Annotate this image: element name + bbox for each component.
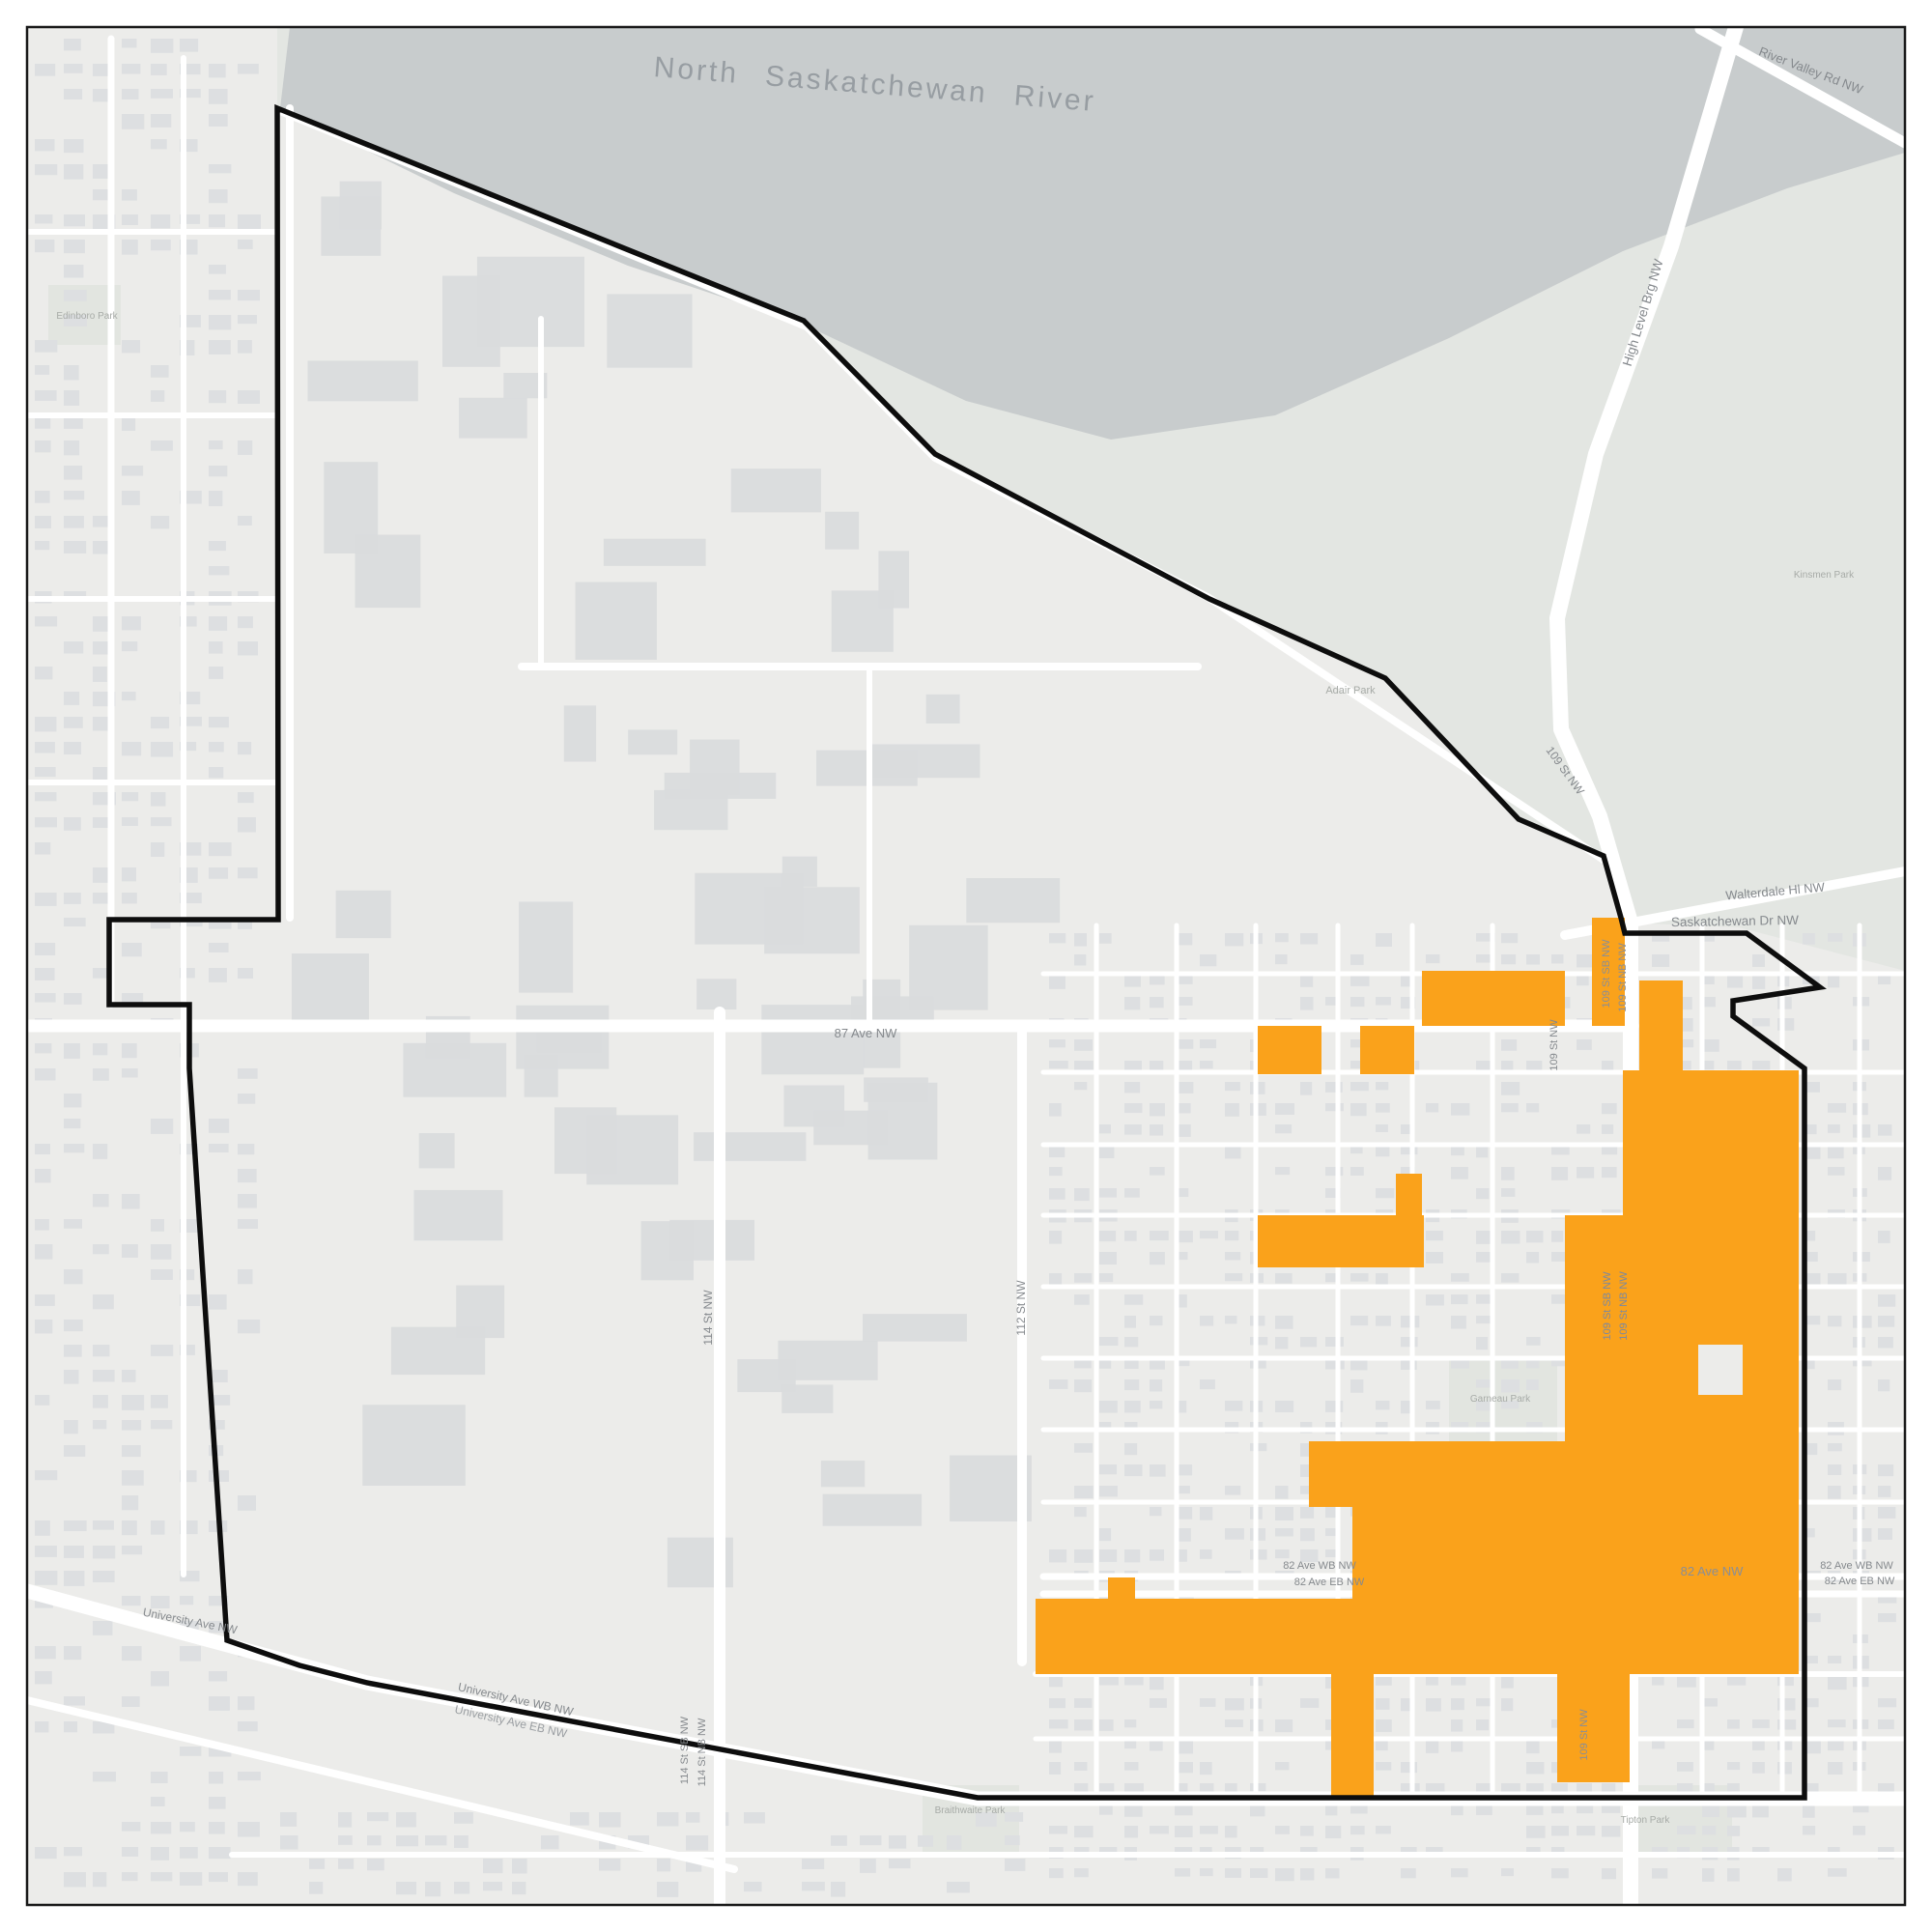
house	[1602, 1124, 1613, 1134]
house	[1501, 1167, 1515, 1180]
house	[64, 290, 87, 301]
house	[1225, 1252, 1240, 1260]
house	[1828, 1486, 1841, 1499]
house	[209, 541, 226, 551]
house	[1074, 933, 1087, 947]
house	[1099, 1804, 1113, 1815]
house	[1752, 1719, 1770, 1728]
house	[180, 1872, 202, 1886]
house	[1878, 1231, 1890, 1243]
house	[1005, 1812, 1023, 1822]
house	[1175, 1826, 1193, 1837]
house	[1124, 1401, 1141, 1412]
house	[1200, 1826, 1218, 1834]
house	[122, 1194, 140, 1209]
house	[35, 340, 57, 353]
house	[151, 792, 165, 807]
house	[1350, 997, 1364, 1007]
house	[1451, 1741, 1463, 1751]
house	[1150, 1061, 1163, 1071]
house	[151, 1395, 168, 1408]
house	[209, 290, 231, 299]
house	[122, 64, 140, 74]
house	[1476, 1804, 1492, 1815]
campus-building	[292, 953, 369, 1022]
house	[93, 1244, 109, 1254]
house	[918, 1835, 933, 1847]
map-label-st112: 112 St NW	[1014, 1280, 1028, 1336]
house	[209, 466, 227, 476]
house	[209, 1696, 230, 1711]
house	[151, 214, 170, 228]
house	[35, 240, 54, 252]
house	[1426, 1741, 1438, 1753]
house	[1828, 1103, 1846, 1113]
house	[1124, 1677, 1144, 1685]
house	[209, 390, 226, 403]
map-viewport: North Saskatchewan RiverRiver Valley Rd …	[0, 0, 1932, 1932]
house	[1225, 1103, 1239, 1117]
house	[64, 1345, 82, 1357]
house	[238, 290, 260, 300]
house	[209, 1144, 229, 1152]
house	[1376, 1316, 1391, 1326]
house	[1501, 1188, 1515, 1197]
house	[1350, 1082, 1369, 1091]
house	[64, 1546, 84, 1558]
house	[1828, 976, 1839, 987]
house	[1853, 1316, 1872, 1328]
campus-building	[821, 1461, 865, 1487]
house	[1225, 1231, 1238, 1240]
house	[35, 1395, 49, 1406]
campus-building	[654, 790, 727, 830]
house	[1702, 1826, 1716, 1834]
house	[122, 641, 137, 651]
house	[1200, 1549, 1212, 1559]
campus-building	[321, 196, 381, 255]
house	[35, 742, 55, 753]
house	[1727, 1762, 1740, 1770]
house	[1376, 933, 1392, 947]
house	[1476, 1337, 1488, 1350]
house	[1828, 1146, 1844, 1158]
house	[1049, 1868, 1064, 1878]
house	[1200, 1379, 1215, 1389]
house	[1878, 1486, 1890, 1497]
house	[1602, 1783, 1615, 1792]
house	[1526, 1783, 1544, 1793]
house	[1677, 1719, 1694, 1728]
campus-building	[413, 1190, 502, 1240]
campus-building	[783, 1086, 844, 1127]
house	[1074, 1826, 1094, 1837]
house	[1049, 1762, 1061, 1775]
house	[64, 1847, 82, 1856]
map-label-tipton-park: Tipton Park	[1621, 1815, 1671, 1826]
highlight-zone-block	[1258, 1026, 1321, 1074]
house	[1099, 1677, 1119, 1686]
house	[1275, 1316, 1293, 1329]
house	[35, 1043, 51, 1053]
map-label-ave87: 87 Ave NW	[835, 1026, 898, 1040]
house	[1275, 1273, 1293, 1284]
house	[1803, 933, 1815, 945]
house	[396, 1882, 416, 1894]
house	[1275, 954, 1288, 964]
house	[1150, 1252, 1165, 1264]
map-label-st114: 114 St NW	[701, 1290, 715, 1346]
campus-building	[696, 979, 736, 1009]
house	[122, 1068, 138, 1077]
house	[64, 1094, 81, 1107]
house	[1501, 933, 1518, 943]
house	[35, 440, 51, 452]
house	[1150, 1103, 1165, 1116]
house	[93, 1144, 107, 1159]
highlight-zone-block	[1036, 1599, 1799, 1674]
house	[238, 1169, 257, 1182]
house	[122, 1596, 141, 1605]
house	[1777, 1868, 1792, 1881]
map-label-st114-nb: 114 St NB NW	[696, 1718, 708, 1786]
house	[1099, 1231, 1116, 1241]
house	[1526, 1337, 1541, 1346]
house	[64, 1320, 83, 1331]
house	[1501, 1082, 1520, 1095]
house	[1376, 1124, 1388, 1132]
house	[1250, 1443, 1266, 1451]
house	[454, 1812, 473, 1824]
house	[64, 541, 86, 554]
house	[122, 1646, 142, 1661]
campus-building	[863, 1314, 967, 1341]
house	[1501, 1231, 1520, 1244]
house	[122, 189, 137, 201]
house	[1727, 976, 1743, 988]
house	[1878, 1316, 1894, 1327]
house	[64, 717, 83, 728]
house	[1074, 1868, 1089, 1877]
house	[151, 139, 167, 149]
house	[1325, 1167, 1343, 1176]
highlight-zone-block	[1565, 1215, 1799, 1507]
house	[122, 1445, 141, 1457]
house	[122, 893, 137, 903]
house	[64, 1119, 80, 1128]
house	[209, 943, 229, 952]
house	[512, 1882, 526, 1894]
campus-building	[391, 1327, 485, 1375]
campus-building	[628, 729, 677, 754]
map-label-st114-sb: 114 St SB NW	[679, 1716, 691, 1784]
house	[1074, 1719, 1093, 1730]
house	[657, 1859, 670, 1871]
house	[1150, 1677, 1164, 1690]
campus-building	[355, 535, 421, 609]
house	[35, 1470, 57, 1480]
house	[1878, 1613, 1896, 1622]
house	[860, 1859, 876, 1873]
house	[64, 89, 82, 99]
house	[93, 1294, 114, 1309]
house	[541, 1835, 559, 1849]
house	[151, 1345, 173, 1356]
house	[209, 641, 223, 654]
highlight-zone-block	[1258, 1215, 1424, 1267]
house	[1049, 1826, 1067, 1834]
house	[1577, 1167, 1594, 1179]
house	[1300, 976, 1313, 987]
house	[1150, 1231, 1169, 1240]
house	[209, 1671, 227, 1681]
house	[35, 943, 55, 955]
house	[1878, 1294, 1895, 1307]
house	[238, 616, 253, 628]
house	[1526, 954, 1540, 965]
house	[1501, 1868, 1514, 1876]
house	[122, 466, 143, 476]
house	[64, 164, 83, 180]
house	[1828, 1656, 1841, 1663]
house	[1878, 1698, 1896, 1707]
house	[1200, 954, 1216, 966]
house	[238, 1094, 255, 1104]
campus-building	[442, 275, 500, 366]
house	[1275, 1719, 1293, 1732]
house	[1150, 1167, 1165, 1176]
house	[35, 1294, 55, 1306]
house	[1501, 1273, 1519, 1283]
house	[64, 265, 83, 277]
house	[122, 1420, 141, 1431]
campus-building	[554, 1107, 616, 1174]
house	[1828, 1379, 1841, 1390]
house	[1049, 1719, 1068, 1728]
house	[1099, 1337, 1118, 1346]
house	[1677, 1677, 1696, 1688]
house	[1652, 954, 1669, 967]
house	[280, 1812, 297, 1827]
house	[1526, 1741, 1540, 1753]
house	[209, 440, 223, 449]
house	[64, 365, 79, 380]
house	[1577, 1039, 1592, 1050]
house	[1401, 1868, 1416, 1878]
house	[1350, 1826, 1365, 1834]
house	[1853, 1826, 1865, 1835]
campus-building	[690, 740, 739, 795]
house	[1150, 1741, 1163, 1750]
highlight-zone-block	[1422, 971, 1565, 1026]
house	[209, 214, 225, 227]
house	[1200, 1316, 1213, 1326]
house	[1049, 1061, 1068, 1068]
house	[1005, 1859, 1025, 1871]
campus-building	[864, 1077, 928, 1101]
house	[831, 1882, 845, 1897]
house	[93, 1772, 116, 1781]
map-label-st109-nb-mid: 109 St NB NW	[1618, 1271, 1630, 1341]
house	[35, 1244, 52, 1260]
house	[1225, 1146, 1241, 1158]
house	[238, 641, 258, 655]
house	[151, 240, 171, 250]
house	[1074, 1443, 1093, 1453]
house	[35, 214, 52, 223]
house	[238, 1068, 258, 1079]
house	[151, 817, 172, 826]
house	[35, 1144, 50, 1154]
house	[1476, 1294, 1492, 1304]
house	[151, 1671, 169, 1687]
campus-building	[519, 901, 573, 992]
house	[1150, 976, 1165, 984]
highlight-zone-block	[1309, 1441, 1565, 1507]
house	[744, 1882, 762, 1891]
house	[151, 717, 169, 728]
house	[93, 1621, 112, 1635]
house	[1099, 1528, 1111, 1541]
house	[1727, 1719, 1740, 1729]
house	[238, 1219, 258, 1229]
house	[35, 842, 50, 855]
house	[238, 742, 251, 754]
house	[1250, 1337, 1267, 1345]
house	[1049, 1273, 1062, 1286]
house	[1526, 1252, 1539, 1264]
house	[35, 64, 55, 76]
house	[1526, 1379, 1539, 1390]
house	[122, 491, 140, 505]
house	[1099, 1549, 1117, 1562]
house	[1526, 1804, 1543, 1815]
house	[1049, 976, 1065, 989]
house	[1551, 1868, 1569, 1878]
house	[1551, 954, 1563, 963]
house	[1350, 1316, 1368, 1325]
house	[889, 1835, 906, 1849]
house	[1074, 1061, 1094, 1071]
house	[1200, 1698, 1215, 1707]
house	[64, 1219, 82, 1229]
campus-building	[825, 512, 859, 550]
house	[1124, 1124, 1142, 1135]
house	[1200, 1507, 1212, 1520]
house	[1150, 1549, 1164, 1561]
house	[238, 340, 252, 354]
house	[35, 1571, 57, 1585]
house	[1124, 1826, 1138, 1837]
house	[151, 1872, 172, 1881]
house	[1225, 1698, 1244, 1710]
house	[238, 1872, 258, 1886]
house	[64, 1269, 83, 1284]
house	[151, 1119, 173, 1134]
house	[64, 1571, 84, 1586]
house	[122, 616, 141, 630]
house	[1099, 1401, 1118, 1413]
house	[1150, 1698, 1167, 1708]
house	[238, 1721, 258, 1731]
house	[1124, 997, 1140, 1009]
house	[238, 1320, 260, 1333]
house	[64, 1370, 78, 1384]
house	[860, 1835, 881, 1845]
house	[64, 817, 81, 831]
house	[1426, 1103, 1438, 1112]
house	[238, 1822, 260, 1837]
house	[122, 1822, 140, 1832]
house	[1275, 1762, 1289, 1770]
house	[122, 1847, 138, 1857]
campus-building	[694, 1132, 806, 1161]
house	[122, 114, 144, 129]
campus-building	[459, 398, 527, 439]
house	[1526, 1826, 1546, 1838]
house	[122, 1370, 136, 1382]
map-label-garneau-park: Garneau Park	[1470, 1394, 1531, 1405]
house	[238, 315, 257, 324]
house	[209, 667, 223, 679]
house	[1074, 1698, 1092, 1708]
house	[151, 39, 173, 53]
house	[209, 114, 228, 127]
house	[1200, 1868, 1213, 1876]
house	[93, 1520, 114, 1530]
house	[64, 1721, 77, 1732]
highlight-zone-block	[1557, 1674, 1630, 1782]
house	[1878, 1167, 1891, 1180]
house	[64, 64, 83, 73]
house	[1150, 1826, 1169, 1833]
house	[1376, 1698, 1390, 1710]
house	[122, 1696, 140, 1707]
house	[686, 1812, 699, 1823]
house	[1501, 1039, 1517, 1051]
house	[1476, 1146, 1488, 1157]
house	[122, 792, 138, 801]
house	[1426, 1401, 1440, 1409]
house	[1878, 1379, 1889, 1391]
house	[209, 767, 223, 778]
house	[209, 1822, 225, 1834]
house	[1451, 1868, 1468, 1877]
house	[599, 1812, 621, 1828]
house	[35, 993, 56, 1003]
house	[35, 541, 49, 550]
house	[1074, 1762, 1087, 1771]
house	[1376, 1082, 1388, 1090]
map-layers: North Saskatchewan RiverRiver Valley Rd …	[27, 27, 1905, 1905]
house	[64, 1144, 84, 1152]
house	[151, 1420, 172, 1429]
house	[180, 1596, 193, 1605]
house	[209, 566, 229, 575]
house	[1250, 1549, 1267, 1560]
house	[483, 1859, 502, 1873]
house	[209, 616, 227, 631]
house	[35, 164, 57, 175]
house	[1099, 1486, 1118, 1496]
house	[1451, 1273, 1469, 1282]
house	[1602, 1826, 1620, 1836]
house	[93, 1370, 115, 1381]
house	[35, 792, 56, 801]
house	[1124, 1337, 1138, 1347]
house	[93, 1043, 107, 1055]
house	[238, 516, 252, 526]
